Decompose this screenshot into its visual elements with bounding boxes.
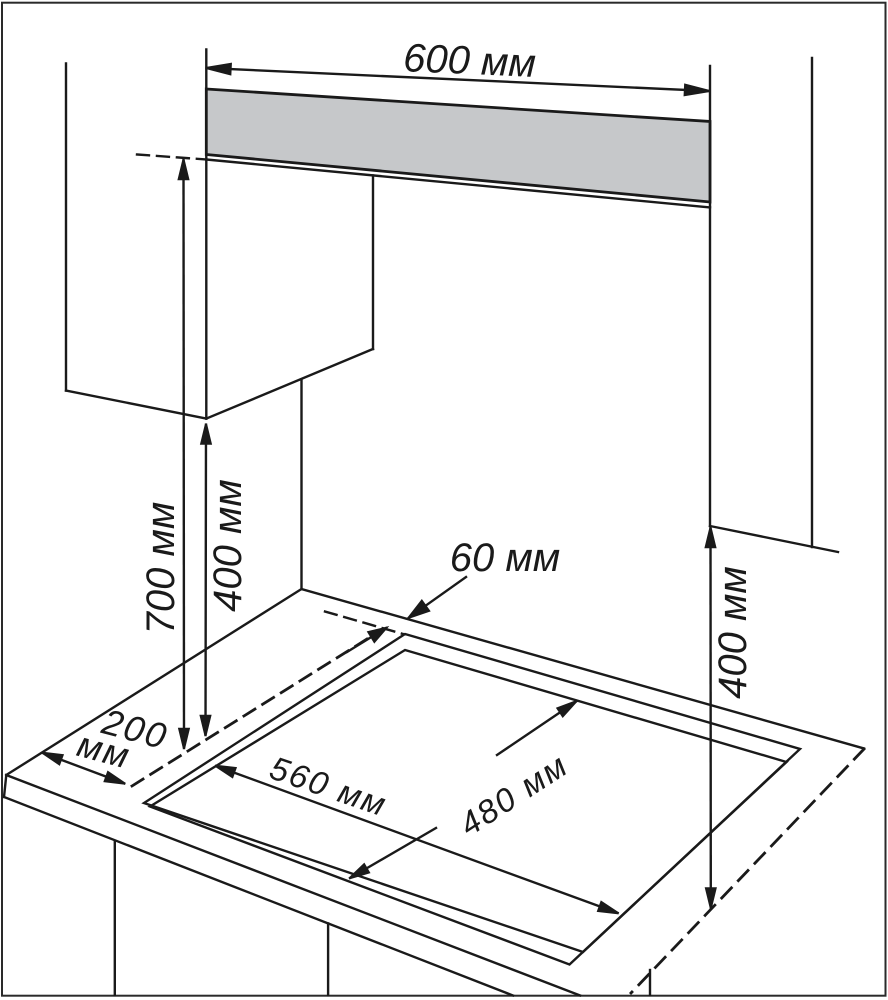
svg-text:600 мм: 600 мм xyxy=(402,36,536,86)
svg-text:400 мм: 400 мм xyxy=(206,479,250,612)
svg-text:60 мм: 60 мм xyxy=(450,536,560,580)
svg-text:400 мм: 400 мм xyxy=(711,566,755,699)
svg-text:700 мм: 700 мм xyxy=(139,502,183,635)
